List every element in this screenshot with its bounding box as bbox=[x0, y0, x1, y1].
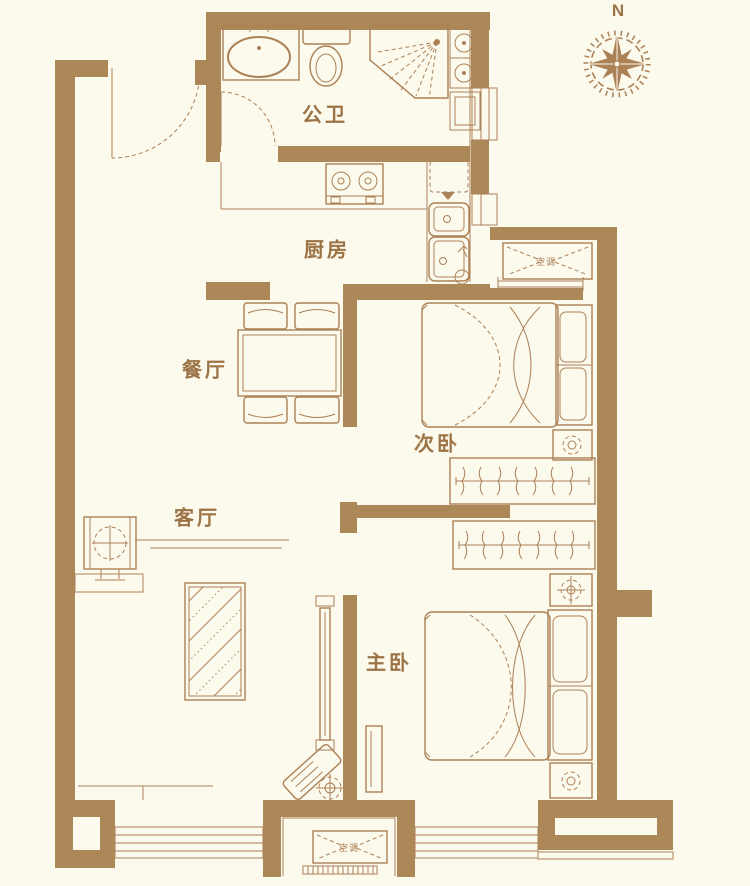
toilet-icon bbox=[303, 28, 350, 86]
sofa-icon bbox=[135, 540, 289, 548]
wall-segment bbox=[345, 284, 490, 300]
tv-cabinet-icon bbox=[366, 726, 382, 792]
bay-window-niche bbox=[555, 818, 657, 835]
louver-icon bbox=[303, 866, 377, 874]
stove-icon bbox=[326, 164, 383, 204]
wall-window-niche bbox=[73, 817, 100, 850]
wall-segment bbox=[343, 284, 357, 427]
window-icon bbox=[472, 88, 497, 140]
wall-segment bbox=[278, 146, 470, 162]
dining-table-icon bbox=[238, 330, 341, 396]
compass-north-label: N bbox=[612, 1, 624, 21]
room-label-living: 客厅 bbox=[174, 502, 220, 531]
fridge-icon bbox=[430, 161, 468, 200]
lamp-icon bbox=[563, 436, 581, 454]
wall-segment bbox=[615, 590, 652, 617]
window-icon bbox=[472, 194, 497, 225]
ac-unit-label: 空调 bbox=[339, 842, 359, 853]
living-furniture bbox=[75, 517, 370, 802]
bed-icon bbox=[425, 612, 550, 760]
wardrobe-icon bbox=[453, 521, 595, 569]
chair-icon bbox=[244, 397, 287, 423]
chair-icon bbox=[295, 303, 339, 329]
master-furniture bbox=[366, 574, 592, 798]
ac-unit-icon: 空调 bbox=[283, 818, 395, 876]
wall-segment bbox=[343, 595, 357, 800]
doors bbox=[112, 68, 275, 158]
wall-segment bbox=[490, 288, 583, 300]
lamp-icon bbox=[316, 774, 344, 802]
room-label-master: 主卧 bbox=[366, 647, 412, 676]
floorplan-canvas: 空调 空调 bbox=[0, 0, 750, 886]
kitchen-sink-icon bbox=[429, 203, 469, 281]
room-label-bathroom: 公卫 bbox=[302, 99, 348, 128]
window-icon bbox=[415, 827, 538, 858]
wall-segment bbox=[263, 800, 281, 877]
tv-cabinet-icon bbox=[316, 596, 334, 750]
wall-segment bbox=[281, 800, 397, 817]
wall-segment bbox=[55, 60, 75, 800]
wall-segment bbox=[490, 227, 617, 240]
room-label-bedroom2: 次卧 bbox=[414, 428, 460, 457]
room-label-dining: 餐厅 bbox=[182, 354, 228, 383]
floor-plan: 空调 空调 公卫 厨房 餐厅 次卧 客厅 主卧 N bbox=[0, 0, 750, 886]
pillow-icon bbox=[548, 610, 592, 760]
wall-segment bbox=[206, 282, 270, 300]
wall-segment bbox=[471, 140, 489, 194]
bathroom-fixtures bbox=[223, 22, 480, 130]
dining-furniture bbox=[238, 303, 341, 423]
vanity-sink-icon bbox=[223, 22, 299, 80]
lamp-icon bbox=[562, 772, 580, 790]
nightstand-icon bbox=[553, 430, 592, 460]
window-icon bbox=[538, 852, 673, 859]
fan-table-icon bbox=[84, 517, 136, 580]
shower-icon bbox=[370, 26, 448, 99]
nightstand-icon bbox=[550, 763, 592, 798]
compass-icon bbox=[586, 33, 648, 95]
wall-segment bbox=[206, 146, 220, 162]
room-label-kitchen: 厨房 bbox=[304, 234, 350, 263]
wall-segment bbox=[340, 502, 357, 533]
wall-segment bbox=[397, 800, 415, 877]
walls bbox=[55, 12, 673, 877]
chair-icon bbox=[295, 397, 339, 423]
bed-icon bbox=[422, 303, 558, 427]
floor-edge-line bbox=[78, 786, 213, 800]
wall-segment bbox=[206, 12, 221, 152]
pillow-icon bbox=[556, 305, 592, 425]
door-swing-icon bbox=[221, 92, 275, 146]
wall-segment bbox=[345, 505, 510, 518]
wall-segment bbox=[597, 227, 617, 800]
chair-icon bbox=[244, 303, 287, 329]
cabinet-icon bbox=[75, 574, 143, 592]
door-swing-icon bbox=[112, 68, 200, 158]
wardrobe-icon bbox=[450, 458, 595, 504]
ac-unit-icon: 空调 bbox=[503, 243, 592, 279]
windows bbox=[115, 88, 673, 859]
ac-unit-label: 空调 bbox=[536, 256, 556, 267]
window-icon bbox=[115, 827, 263, 858]
rug-icon bbox=[90, 580, 370, 700]
wall-segment bbox=[471, 12, 489, 88]
nightstand-icon bbox=[550, 574, 592, 606]
